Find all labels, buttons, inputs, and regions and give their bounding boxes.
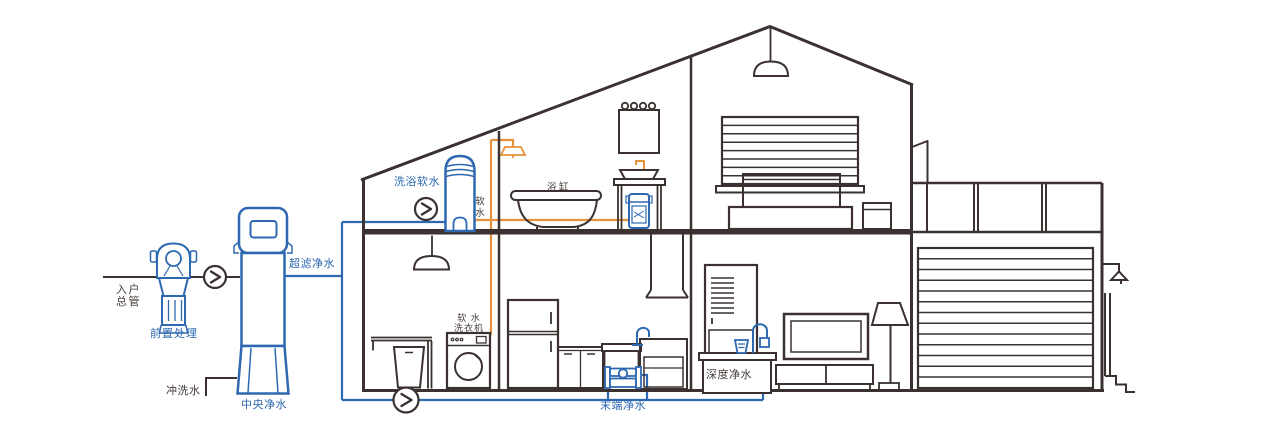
floor-lamp-base — [879, 383, 899, 390]
label-ultrafiltration: 超滤净水 — [289, 258, 335, 270]
label-pre-treatment: 前置处理 — [150, 328, 198, 340]
bedroom-furniture — [716, 27, 891, 229]
vanity-faucet-icon — [636, 161, 644, 170]
tv-stand — [776, 365, 873, 384]
label-washer-line2: 洗衣机 — [448, 323, 490, 333]
living-room-furniture — [776, 303, 908, 390]
pendant-lamp-icon — [754, 62, 788, 77]
laundry-room-furniture — [371, 236, 490, 389]
vanity-counter — [614, 179, 665, 185]
label-central-purifier: 中央净水 — [241, 399, 287, 411]
vanity-filter-unit — [626, 194, 652, 228]
label-entry-line1: 入户 — [116, 284, 141, 296]
exterior-downspout-and-steps — [1105, 293, 1135, 392]
terrace-roof-edge — [912, 141, 928, 183]
window-sill — [716, 186, 864, 193]
undersink-filter-unit — [605, 367, 641, 388]
pre-filter-unit — [151, 244, 197, 334]
flow-direction-icon — [204, 266, 226, 288]
shower-head-icon — [501, 147, 525, 158]
water-cup-icon — [735, 340, 748, 353]
flow-direction-icon — [394, 388, 419, 413]
kitchen-furniture — [508, 300, 687, 389]
garage-roller-door — [918, 248, 1093, 388]
label-entry-main: 入户 总管 — [116, 284, 141, 308]
vanity-lights-icon — [622, 103, 655, 109]
nightstand — [863, 203, 891, 229]
diagram-art — [0, 0, 1280, 434]
label-flush-water: 冲洗水 — [166, 385, 201, 397]
tv-screen — [791, 321, 861, 352]
floor-lamp-shade — [872, 303, 908, 325]
vanity-mirror — [619, 110, 659, 153]
whole-house-water-system-diagram: 入户 总管 前置处理 中央净水 冲洗水 超滤净水 洗浴软水 软水 浴缸 软 水 … — [0, 0, 1280, 434]
central-purifier-unit — [234, 208, 292, 394]
bathtub-bowl — [518, 200, 597, 227]
label-deep-purifier: 深度净水 — [706, 369, 752, 381]
label-soft-water-washer: 软 水 洗衣机 — [448, 313, 490, 333]
label-terminal-purifier: 末端净水 — [600, 400, 646, 412]
label-bathtub: 浴缸 — [547, 182, 571, 194]
outdoor-wall-lamp-icon — [1102, 264, 1127, 284]
station-counter — [699, 353, 776, 360]
label-washer-line1: 软 水 — [448, 313, 490, 323]
range-hood-duct — [646, 234, 688, 298]
label-entry-line2: 总管 — [116, 296, 141, 308]
label-soft-water: 软水 — [472, 196, 484, 219]
flow-direction-icon — [415, 198, 437, 220]
laundry-shelf — [371, 338, 432, 341]
water-softener-unit — [446, 156, 475, 231]
label-shower-softener: 洗浴软水 — [394, 176, 440, 188]
bathroom-furniture — [511, 103, 688, 298]
vanity-sink — [620, 170, 658, 179]
ceiling-lamp-icon — [414, 256, 449, 270]
bed-base — [729, 207, 852, 229]
